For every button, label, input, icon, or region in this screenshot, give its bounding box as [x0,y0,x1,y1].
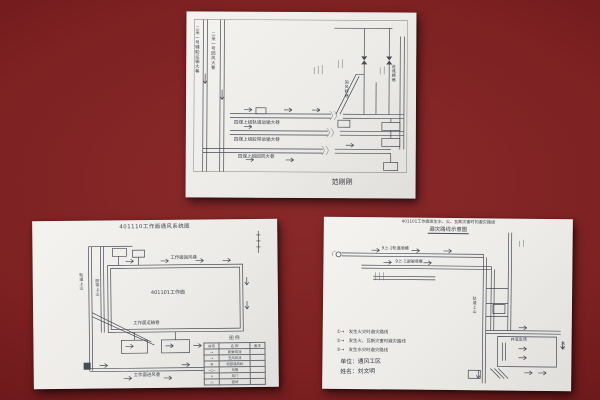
shaft-symbol [84,363,91,370]
diagram-title-text: 避灾路线示意图 [427,226,469,234]
rise-trunk [482,232,512,383]
legend-block: 图 例 符号 名 称 备注 → 新鲜风流 ⇢ 乏风风流 ⊗ 局部通风机 [203,336,266,386]
working-face-label: 401101工作面 [151,291,185,297]
legend-table: 符号 名 称 备注 → 新鲜风流 ⇢ 乏风风流 ⊗ 局部通风机 ─○─ 风 [203,342,265,386]
roadway-label-left-2: 二采一号回风大巷 [210,32,215,70]
legend-text: 发生火、瓦斯灾害时避灾路线 [349,339,406,345]
top-diagram-linework [186,11,417,198]
fan-icon [361,56,367,60]
legend-line-3: ③→ 发生水灾时避灾路线 [336,347,388,354]
survey-tick-marks [314,59,394,76]
roadway-label-rail: 四煤上组轨道运输大巷 [234,121,280,127]
legend-line-1: ①→ 发生火灾时避灾路线 [337,329,389,336]
paper-top-roadway-diagram: 二采一号辅助运输大巷 二采一号回风大巷 四煤上组轨道运输大巷 四煤上组胶带运输大… [186,11,417,198]
footer-name: 姓名：刘文明 [340,369,375,376]
rail-rise-label: 轨道上山 [79,273,84,291]
haulage-airway-label: 工作面运输巷 [133,321,159,326]
legend-title: 图 例 [203,336,265,342]
legend-text: 发生水灾时避灾路线 [349,348,389,353]
route-arrow-icon: ①→ [337,330,345,335]
legend-text: 发生火灾时避灾路线 [349,330,389,335]
rail-gateroad-label: 9上-1轨道顺槽 [382,246,409,251]
roadway-label-return: 四煤上组回风大巷 [238,155,275,160]
legend-cell: 密闭 [220,379,251,385]
legend-line-2: ②→ 发生火、瓦斯灾害时避灾路线 [337,338,406,345]
footer-unit: 单位：通风工区 [340,359,381,366]
sump-label: 水仓 [561,341,566,350]
legend-cell [250,378,265,384]
return-airway-label: 工作面回风巷 [170,256,196,261]
paper-escape-route-diagram: 401101工作面发生水、火、瓦斯灾害时的避灾路线 避灾路线示意图 9上-1轨道… [322,217,573,392]
legend-cell: ▭ [204,379,219,385]
pit-yard-label: 井底车场 [511,338,527,343]
scale-bar [256,231,260,253]
route-arrow-icon: ③→ [336,348,344,353]
horizontal-main-roadways [203,110,404,155]
face-loop [108,264,244,332]
legend-row: ▭ 密闭 [204,378,265,385]
rise-label: 轨道上山 [472,296,477,314]
roadway-label-left-1: 二采一号辅助运输大巷 [194,25,199,73]
incline-label: 回风斜巷 [344,80,349,98]
escape-route-arrows [370,248,565,379]
drafter-signature: 范刚刚 [332,178,353,186]
shaft-label: 进风斜巷 [391,64,396,82]
paper-face-ventilation-diagram: 401110工作面通风系统图 工作面回风巷 401101工作面 工作面运输巷 工… [32,219,279,390]
fan-icon [386,56,392,60]
photo-background: { "scene": {"background_color": "#7d2122… [0,0,600,400]
face-end-symbol [336,252,341,257]
intake-airway-label: 工作面进风巷 [134,373,160,378]
gateroads [332,238,524,282]
route-arrow-icon: ②→ [337,339,345,344]
roadway-label-belt: 四煤上组胶带运输大巷 [234,138,280,144]
haulage-gateroad-label: 9上-1运输顺槽 [395,259,422,264]
belt-rise-label: 胶带上山 [95,279,100,297]
